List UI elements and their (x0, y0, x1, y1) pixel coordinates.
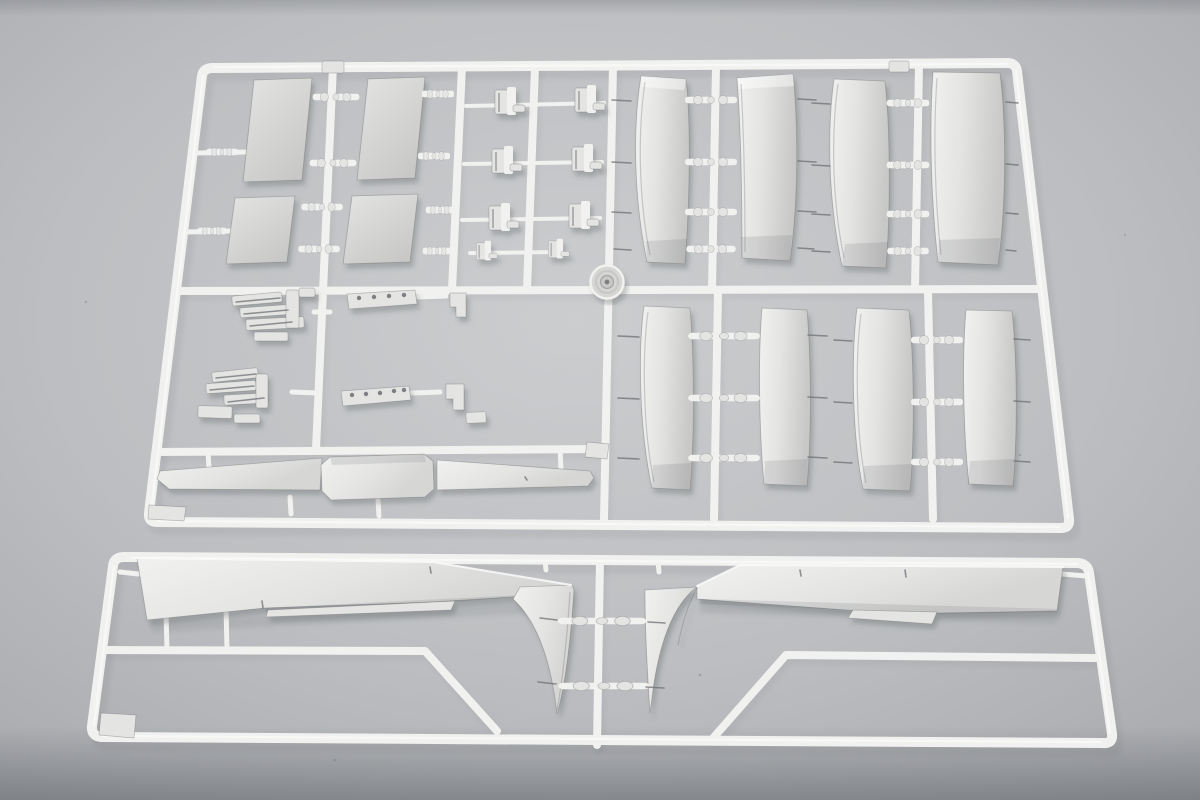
upper-sprue (148, 61, 1074, 535)
rect-panel-2 (357, 77, 425, 180)
slat-facet (764, 459, 808, 486)
rect-panel-4 (343, 194, 418, 264)
rect-panel-3 (226, 196, 295, 264)
slat-panel-3 (830, 79, 890, 268)
bracket-slat (198, 405, 232, 418)
bracket-foot (234, 414, 260, 423)
small-tab-part (466, 411, 487, 423)
slat-facet (646, 239, 687, 264)
rail-tab (322, 61, 344, 73)
bracket-foot (299, 288, 315, 297)
round-disc-part (591, 266, 624, 299)
rail-tab (585, 442, 609, 459)
slat-panel-1 (636, 76, 690, 264)
slat-facet (968, 459, 1014, 486)
sprue-photo: Photograph of two light-gray injection-m… (0, 0, 1200, 800)
slat-facet (741, 235, 792, 261)
slat-panel-5 (640, 306, 693, 490)
photo-stage: Photograph of two light-gray injection-m… (0, 0, 1200, 800)
disc-center (605, 280, 610, 285)
rail-tab (889, 61, 909, 72)
corner-pad (99, 713, 136, 738)
slat-panel-4 (931, 72, 1005, 265)
rect-panel-1 (243, 78, 312, 182)
bracket-slat (254, 332, 288, 341)
slat-facet (863, 464, 911, 491)
corner-pad (148, 505, 186, 521)
bracket-post (256, 374, 268, 408)
slat-panel-2 (737, 74, 797, 261)
slat-facet (938, 238, 1000, 265)
slat-facet (652, 463, 691, 490)
slat-facet (842, 242, 888, 268)
backdrop-top-shade (0, 0, 1200, 16)
